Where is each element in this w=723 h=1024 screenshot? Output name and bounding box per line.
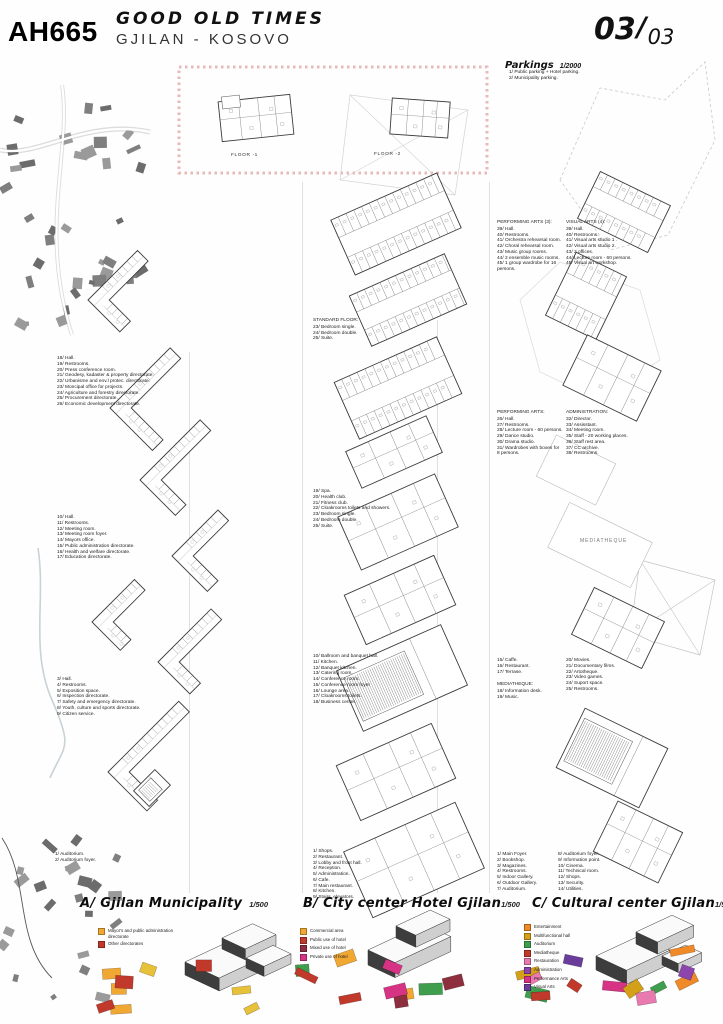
sheet-total: 03 <box>648 25 675 49</box>
section-a-scale: 1/500 <box>249 900 268 909</box>
legend-item: Visual Arts <box>524 984 624 991</box>
list-item: 2/ Auditorium foyer. <box>55 858 190 864</box>
list-item: 14/ Utilities. <box>558 887 620 893</box>
parkings-scale: 1/2000 <box>560 63 581 70</box>
legend-label: Visual Arts <box>534 984 555 990</box>
legend-swatch <box>524 941 531 948</box>
floor-plan <box>108 701 218 811</box>
project-title: GOOD OLD TIMES <box>116 9 325 29</box>
legend-hotel: Commercial areaPublic use of hotelMixed … <box>300 928 410 962</box>
floor-plan <box>548 502 653 587</box>
legend-label: Entertainment <box>534 924 561 930</box>
legend-label: Mayor's and public administration direct… <box>108 928 188 939</box>
list-item: 18/ Business center. <box>313 700 438 706</box>
list-item: 42/ Choral rehearsal room. <box>497 244 563 250</box>
section-c-title: C/ Cultural center Gjilan <box>532 896 715 911</box>
room-list-cultural-performing: PERFORMING ARTS:26/ Hall.27/ Restrooms.2… <box>497 410 563 457</box>
list-item: 45/ 1 group wardrobe for 16 persons. <box>497 261 563 273</box>
list-item: 26/ Economic development directorate. <box>57 402 192 408</box>
legend-swatch <box>524 924 531 931</box>
room-list-cultural-cafe: 15/ Caffe.16/ Restaurant.17/ Terrase. <box>497 658 561 675</box>
room-list-municipality-2: 10/ Hall.11/ Restrooms.12/ Meeting room.… <box>57 515 192 561</box>
list-title: VISUAL ARTS (4): <box>566 220 636 226</box>
legend-label: Commercial area <box>310 928 343 934</box>
legend-swatch <box>300 937 307 944</box>
room-list-hotel-3: 10/ Ballroom and banquet hall.11/ Kitche… <box>313 654 438 706</box>
legend-label: Restauration <box>534 958 559 964</box>
legend-label: Other directorates <box>108 941 143 947</box>
legend-item: Other directorates <box>98 941 218 948</box>
list-item: 19/ Music. <box>497 695 561 701</box>
legend-item: Restauration <box>524 958 624 965</box>
river-line <box>38 548 65 778</box>
list-item: 25/ Restrooms. <box>566 687 632 693</box>
legend-swatch <box>300 954 307 961</box>
presentation-board: AH665 GOOD OLD TIMES GJILAN - KOSOVO 03 … <box>0 0 723 1024</box>
legend-swatch <box>524 958 531 965</box>
legend-item: Entertainment <box>524 924 624 931</box>
room-list-cultural-visual-4: VISUAL ARTS (4):39/ Hall.40/ Restrooms.4… <box>566 220 636 267</box>
floor-plan <box>563 335 661 421</box>
list-title: ADMINISTRATION: <box>566 410 636 416</box>
sheet-slash: / <box>637 12 647 43</box>
list-item: 7/ Auditorium. <box>497 887 555 893</box>
list-item: 9/ Citizen service. <box>57 712 192 718</box>
legend-municipality: Mayor's and public administration direct… <box>98 928 218 949</box>
list-item: 17/ Terrase. <box>497 670 561 676</box>
floor-plan <box>334 337 462 439</box>
legend-label: Public use of hotel <box>310 937 346 943</box>
room-list-cultural-mediatheque: MEDIATHEQUE:18/ Information desk.19/ Mus… <box>497 682 561 700</box>
inset-floor-label-1: FLOOR -1 <box>231 153 258 158</box>
list-item: 35/ Staff - 20 working places. <box>566 434 636 440</box>
room-list-municipality-1: 18/ Hall.19/ Restrooms.20/ Press confere… <box>57 356 192 408</box>
parkings-list: 1/ Public parking + Hotel parking.2/ Mun… <box>509 70 619 82</box>
legend-item: Public use of hotel <box>300 937 410 944</box>
inset-wing <box>221 95 240 109</box>
section-title-cultural: C/ Cultural center Gjilan 1/500 <box>532 896 692 911</box>
section-b-title: B/ City center Hotel Gjilan <box>303 896 501 911</box>
section-c-scale: 1/500 <box>715 900 723 909</box>
legend-swatch <box>524 933 531 940</box>
legend-label: Multifunctional hall <box>534 933 570 939</box>
floor-plan <box>572 588 665 669</box>
section-a-title: A/ Gjilan Municipality <box>80 896 242 911</box>
room-list-municipality-3: 3/ Hall.4/ Restrooms.5/ Exposition space… <box>57 677 192 717</box>
site-map-top-left <box>0 85 150 335</box>
room-list-cultural-ground-2: 8/ Auditorium foyer.9/ Information point… <box>558 852 620 892</box>
legend-label: Administration <box>534 967 562 973</box>
legend-swatch <box>524 976 531 983</box>
list-item: 45/ Visual art workshop. <box>566 261 636 267</box>
legend-item: Private use of hotel <box>300 954 410 961</box>
legend-swatch <box>98 941 105 948</box>
legend-item: Mayor's and public administration direct… <box>98 928 218 939</box>
list-title: PERFORMING ARTS (3): <box>497 220 563 226</box>
project-subtitle: GJILAN - KOSOVO <box>116 31 292 48</box>
legend-label: Mediatheque <box>534 950 559 956</box>
project-code: AH665 <box>8 16 98 48</box>
list-item: 2/ Municipality parking. <box>509 76 619 82</box>
legend-label: Mixed use of hotel <box>310 945 346 951</box>
room-list-cultural-media-2: 20/ Movies.21/ Documentary films.22/ Art… <box>566 658 632 693</box>
legend-item: Administration <box>524 967 624 974</box>
legend-item: Mixed use of hotel <box>300 945 410 952</box>
list-item: 25/ Suite. <box>313 336 438 342</box>
legend-swatch <box>98 928 105 935</box>
section-title-municipality: A/ Gjilan Municipality 1/500 <box>80 896 268 911</box>
room-list-cultural-administration: ADMINISTRATION:32/ Director.33/ Assissta… <box>566 410 636 457</box>
legend-cultural: EntertainmentMultifunctional hallAuditor… <box>524 924 624 993</box>
legend-item: Auditorium <box>524 941 624 948</box>
mediatheque-plan-label: MEDIATHEQUE <box>580 538 627 544</box>
legend-label: Performance Arts <box>534 976 568 982</box>
list-title: MEDIATHEQUE: <box>497 682 561 688</box>
list-item: 17/ Education directorate. <box>57 555 192 561</box>
room-list-hotel-1: STANDARD FLOOR:23/ Bedroom single.24/ Be… <box>313 318 438 342</box>
legend-label: Private use of hotel <box>310 954 348 960</box>
legend-item: Mediatheque <box>524 950 624 957</box>
list-item: 38/ Restrooms. <box>566 451 636 457</box>
legend-item: Performance Arts <box>524 976 624 983</box>
legend-item: Commercial area <box>300 928 410 935</box>
room-list-cultural-performing-3: PERFORMING ARTS (3):39/ Hall.40/ Restroo… <box>497 220 563 273</box>
list-item: 25/ Suite. <box>313 524 438 530</box>
legend-label: Auditorium <box>534 941 555 947</box>
legend-swatch <box>524 984 531 991</box>
legend-swatch <box>524 950 531 957</box>
legend-swatch <box>300 928 307 935</box>
legend-item: Multifunctional hall <box>524 933 624 940</box>
list-item: 31/ Wardrobes with boxes for 8 persons. <box>497 446 563 458</box>
section-b-scale: 1/500 <box>501 900 520 909</box>
list-title: STANDARD FLOOR: <box>313 318 438 324</box>
legend-swatch <box>524 967 531 974</box>
floor-plan <box>390 98 450 138</box>
legend-swatch <box>300 945 307 952</box>
room-list-hotel-4: 1/ Shops.2/ Restaurant.3/ Lobby and fron… <box>313 849 438 901</box>
floor-plan <box>92 580 163 651</box>
sheet-number: 03 / 03 <box>594 12 674 49</box>
list-title: PERFORMING ARTS: <box>497 410 563 416</box>
room-list-hotel-2: 19/ Spa.20/ Health club.21/ Fitness club… <box>313 489 438 529</box>
section-title-hotel: B/ City center Hotel Gjilan 1/500 <box>303 896 475 911</box>
room-list-municipality-4: 1/ Auditorium.2/ Auditorium foyer. <box>55 852 190 864</box>
inset-floor-label-2: FLOOR -2 <box>374 152 401 157</box>
room-list-cultural-ground-1: 1/ Main Foyer.2/ Bookshop.3/ Magazines.4… <box>497 852 555 892</box>
sheet-current: 03 <box>594 12 636 47</box>
floor-plan <box>556 708 668 808</box>
